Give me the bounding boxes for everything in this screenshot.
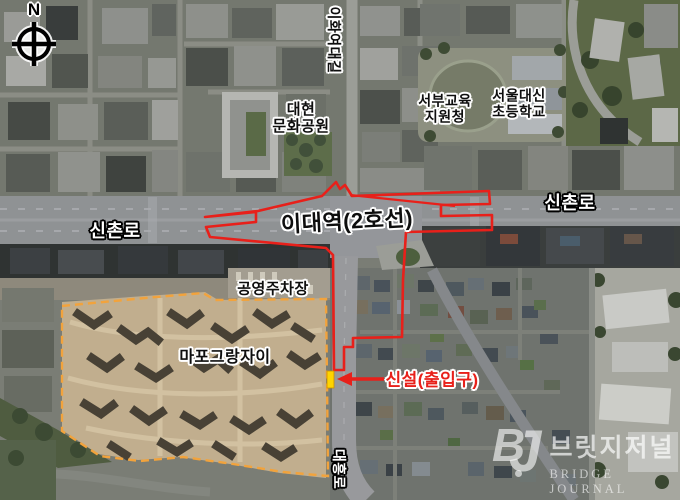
buildings-south-of-road-east bbox=[420, 226, 680, 268]
northeast-green-area bbox=[566, 0, 680, 146]
mapo-grand-xi-complex bbox=[62, 292, 326, 478]
satellite-basemap bbox=[0, 0, 680, 500]
daehyun-park-area bbox=[222, 92, 332, 178]
public-parking-area bbox=[228, 268, 330, 298]
buildings-mid-north bbox=[424, 146, 674, 190]
campus-east bbox=[590, 268, 680, 500]
school-grounds bbox=[418, 4, 570, 142]
satellite-map: N 이화여대길 대현 문화공원 서부교육 지원청 서울대신 초등학교 신촌로 신… bbox=[0, 0, 680, 500]
new-entrance-marker bbox=[327, 371, 334, 388]
